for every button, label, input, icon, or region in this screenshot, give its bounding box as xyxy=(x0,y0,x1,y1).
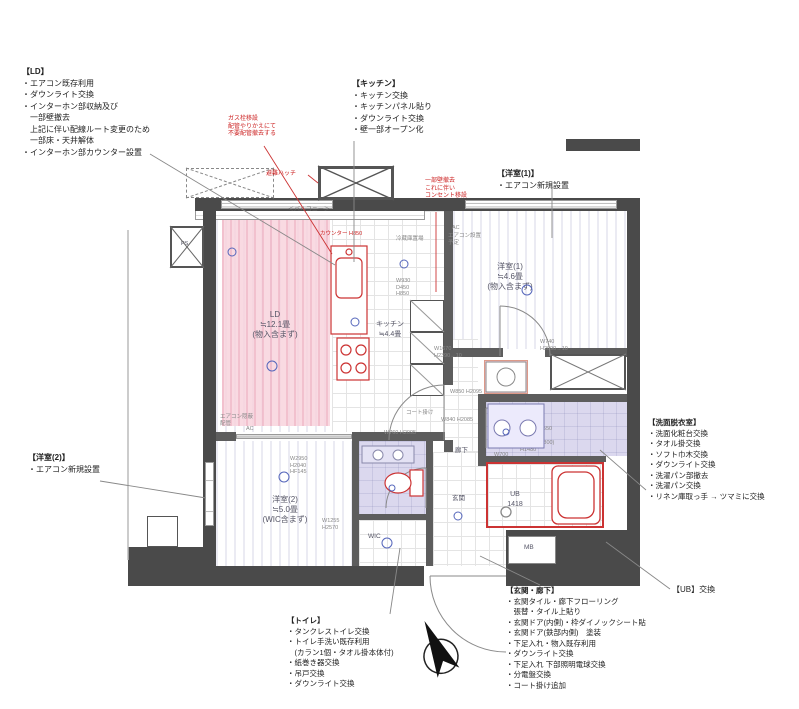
western2-name: 洋室(2) xyxy=(250,495,320,505)
western1-name: 洋室(1) xyxy=(475,262,545,272)
western1-note: (物入含まず) xyxy=(475,282,545,292)
ld-name: LD xyxy=(235,310,315,320)
entrance-door-arc xyxy=(430,576,506,652)
spec-label: W840 H2085 xyxy=(441,417,473,424)
escape-hatch-label: 避難ハッチ xyxy=(266,171,296,179)
western2-window xyxy=(205,462,214,526)
spec-label: W740 H2090→10 xyxy=(540,339,574,352)
annotation-kitchen-lines: ・キッチン交換・キッチンパネル貼り・ダウンライト交換・壁一部オープン化 xyxy=(352,90,432,136)
north-arrow-icon xyxy=(409,614,464,680)
escape-hatch-box xyxy=(318,166,394,200)
kitchen-tall-cabinet-1 xyxy=(410,300,444,332)
laundry-size-label: 640×640 xyxy=(492,380,514,387)
wall-hall-lower xyxy=(444,440,453,452)
fridge-label: 冷蔵庫置場 xyxy=(396,236,426,243)
western2-label: 洋室(2) ≒5.0畳 (WIC含まず) xyxy=(250,495,320,525)
genkan-label: 玄関 xyxy=(452,492,465,502)
hall-name: 廊下 xyxy=(455,447,468,454)
ld-note: (物入含まず) xyxy=(235,330,315,340)
sliding-door-ld-western2 xyxy=(236,434,352,439)
red-note-wall: 一部壁撤去これに伴いコンセント移設 xyxy=(425,178,467,201)
wall-left-upper xyxy=(203,211,216,447)
kitchen-name: キッチン xyxy=(368,320,412,330)
annotation-entrance-lines: ・玄関タイル・廊下フローリング 張替・タイル上貼り・玄関ドア(内側)・枠ダイノッ… xyxy=(506,597,646,692)
spec-label: W760 H2095 xyxy=(384,430,416,437)
ps-box xyxy=(170,226,204,268)
spec-label: W1200 D550 H1800 xyxy=(520,426,564,439)
annotation-entrance: 【玄関・廊下】 ・玄関タイル・廊下フローリング 張替・タイル上貼り・玄関ドア(内… xyxy=(506,586,646,691)
meter-recess-left xyxy=(147,516,178,547)
kitchen-size: ≒4.4畳 xyxy=(368,330,412,340)
red-note-counter-lines: ガス栓移設配管やりかえにて不要配管撤去する xyxy=(228,116,276,139)
annotation-ub-label: 【UB】交換 xyxy=(672,584,715,596)
annotation-western1-lines: ・エアコン新規設置 xyxy=(497,180,569,192)
spec-label: W1255 H2570 xyxy=(322,518,348,531)
annotation-washroom: 【洗面脱衣室】 ・洗面化粧台交換・タオル掛交換・ソフト巾木交換・ダウンライト交換… xyxy=(648,418,765,502)
wall-western2-right xyxy=(352,440,359,566)
washroom-name: 洗面室 xyxy=(492,410,512,417)
mb-label: MB xyxy=(524,544,534,551)
wic-label: WIC xyxy=(368,533,381,540)
annotation-western1-title: 【洋室(1)】 xyxy=(497,168,569,180)
ld-size: ≒12.1畳 xyxy=(235,320,315,330)
ps-label: PS xyxy=(181,241,188,247)
hatch-outline-dashed xyxy=(186,168,274,198)
hall-label: 廊下 xyxy=(455,444,468,454)
annotation-toilet: 【トイレ】 ・タンクレストイレ交換・トイレ手洗い既存利用 (カラン1個・タオル掛… xyxy=(287,616,394,690)
annotation-ld: 【LD】 ・エアコン既存利用・ダウンライト交換・インターホン部収納及び 一部壁撤… xyxy=(22,66,150,158)
annotation-washroom-title: 【洗面脱衣室】 xyxy=(648,418,765,429)
wall-bottom-left xyxy=(128,566,424,586)
annotation-ld-lines: ・エアコン既存利用・ダウンライト交換・インターホン部収納及び 一部壁撤去 上記に… xyxy=(22,78,150,159)
annotation-kitchen: 【キッチン】 ・キッチン交換・キッチンパネル貼り・ダウンライト交換・壁一部オープ… xyxy=(352,78,432,136)
ub-size: 1418 xyxy=(495,500,535,510)
mb-name: MB xyxy=(524,544,534,551)
kitchen-tall-cabinet-3 xyxy=(410,364,444,396)
wall-toilet-right xyxy=(426,440,433,566)
annotation-western1: 【洋室(1)】 ・エアコン新規設置 xyxy=(497,168,569,191)
western1-window xyxy=(465,200,617,209)
ld-label: LD ≒12.1畳 (物入含まず) xyxy=(235,310,315,340)
spec-label: W2950 H2040 HF145 xyxy=(290,456,318,476)
annotation-western2-lines: ・エアコン新規設置 xyxy=(28,464,100,476)
ub-name: UB xyxy=(495,490,535,500)
spec-label: W700 xyxy=(494,452,508,459)
floor-plan-page: LD ≒12.1畳 (物入含まず) キッチン ≒4.4畳 洋室(1) ≒4.6畳… xyxy=(0,0,799,709)
wall-washroom-top xyxy=(478,394,627,402)
wall-ld-western2-a xyxy=(216,432,236,441)
spec-label: W1670 H2390→10 xyxy=(434,346,468,359)
ac-badge-2: AC xyxy=(246,426,254,433)
western1-size: ≒4.6畳 xyxy=(475,272,545,282)
ub-label: UB 1418 xyxy=(495,490,535,510)
counter-label: カウンター H850 xyxy=(320,231,362,238)
kitchen-label: キッチン ≒4.4畳 xyxy=(368,320,412,340)
annotation-entrance-title: 【玄関・廊下】 xyxy=(506,586,646,597)
coat-hook-label: コート掛け xyxy=(406,410,434,417)
wall-right xyxy=(627,198,640,586)
leader-western2 xyxy=(100,481,206,498)
annotation-ld-title: 【LD】 xyxy=(22,66,150,78)
closet-western1 xyxy=(550,354,626,390)
balcony-label: ＜バルコニー＞ xyxy=(288,207,330,214)
annotation-western2-title: 【洋室(2)】 xyxy=(28,452,100,464)
laundry-pan-highlight xyxy=(484,360,528,394)
spec-label: W2740 D750 xyxy=(336,318,362,331)
wic-floor xyxy=(359,520,426,566)
washroom-label: 洗面室 xyxy=(492,407,512,417)
red-note-wall-lines: 一部壁撤去これに伴いコンセント移設 xyxy=(425,178,467,201)
annotation-toilet-lines: ・タンクレストイレ交換・トイレ手洗い既存利用 (カラン1個・タオル掛本体付)・紙… xyxy=(287,627,394,690)
wall-toilet-wic xyxy=(359,514,426,520)
ps-name: PS xyxy=(181,241,188,247)
western2-note: (WIC含まず) xyxy=(250,515,320,525)
wall-corner-block xyxy=(128,547,208,567)
annotation-washroom-lines: ・洗面化粧台交換・タオル掛交換・ソフト巾木交換・ダウンライト交換・洗濯パン部撤去… xyxy=(648,429,765,503)
wall-washroom-left xyxy=(478,394,486,466)
annotation-toilet-title: 【トイレ】 xyxy=(287,616,394,627)
red-note-counter: ガス栓移設配管やりかえにて不要配管撤去する xyxy=(228,116,276,139)
leader-hatch xyxy=(308,175,318,183)
wic-name: WIC xyxy=(368,533,381,540)
ac-badge-1: AC xyxy=(452,225,460,232)
spec-label: W850 H2095 xyxy=(450,389,482,396)
genkan-name: 玄関 xyxy=(452,495,465,502)
western1-label: 洋室(1) ≒4.6畳 (物入含まず) xyxy=(475,262,545,292)
spec-label: (W750×H800) H1480 xyxy=(520,440,564,453)
western2-size: ≒5.0畳 xyxy=(250,505,320,515)
spec-label: W930 D450 H850 xyxy=(396,278,422,298)
annotation-kitchen-title: 【キッチン】 xyxy=(352,78,432,90)
toilet-floor-highlight xyxy=(359,441,426,514)
annotation-ub: 【UB】交換 xyxy=(672,584,715,596)
ac-plan-label-1: エアコン設置予定 xyxy=(448,233,484,246)
top-right-bar xyxy=(566,139,640,151)
annotation-western2: 【洋室(2)】 ・エアコン新規設置 xyxy=(28,452,100,475)
